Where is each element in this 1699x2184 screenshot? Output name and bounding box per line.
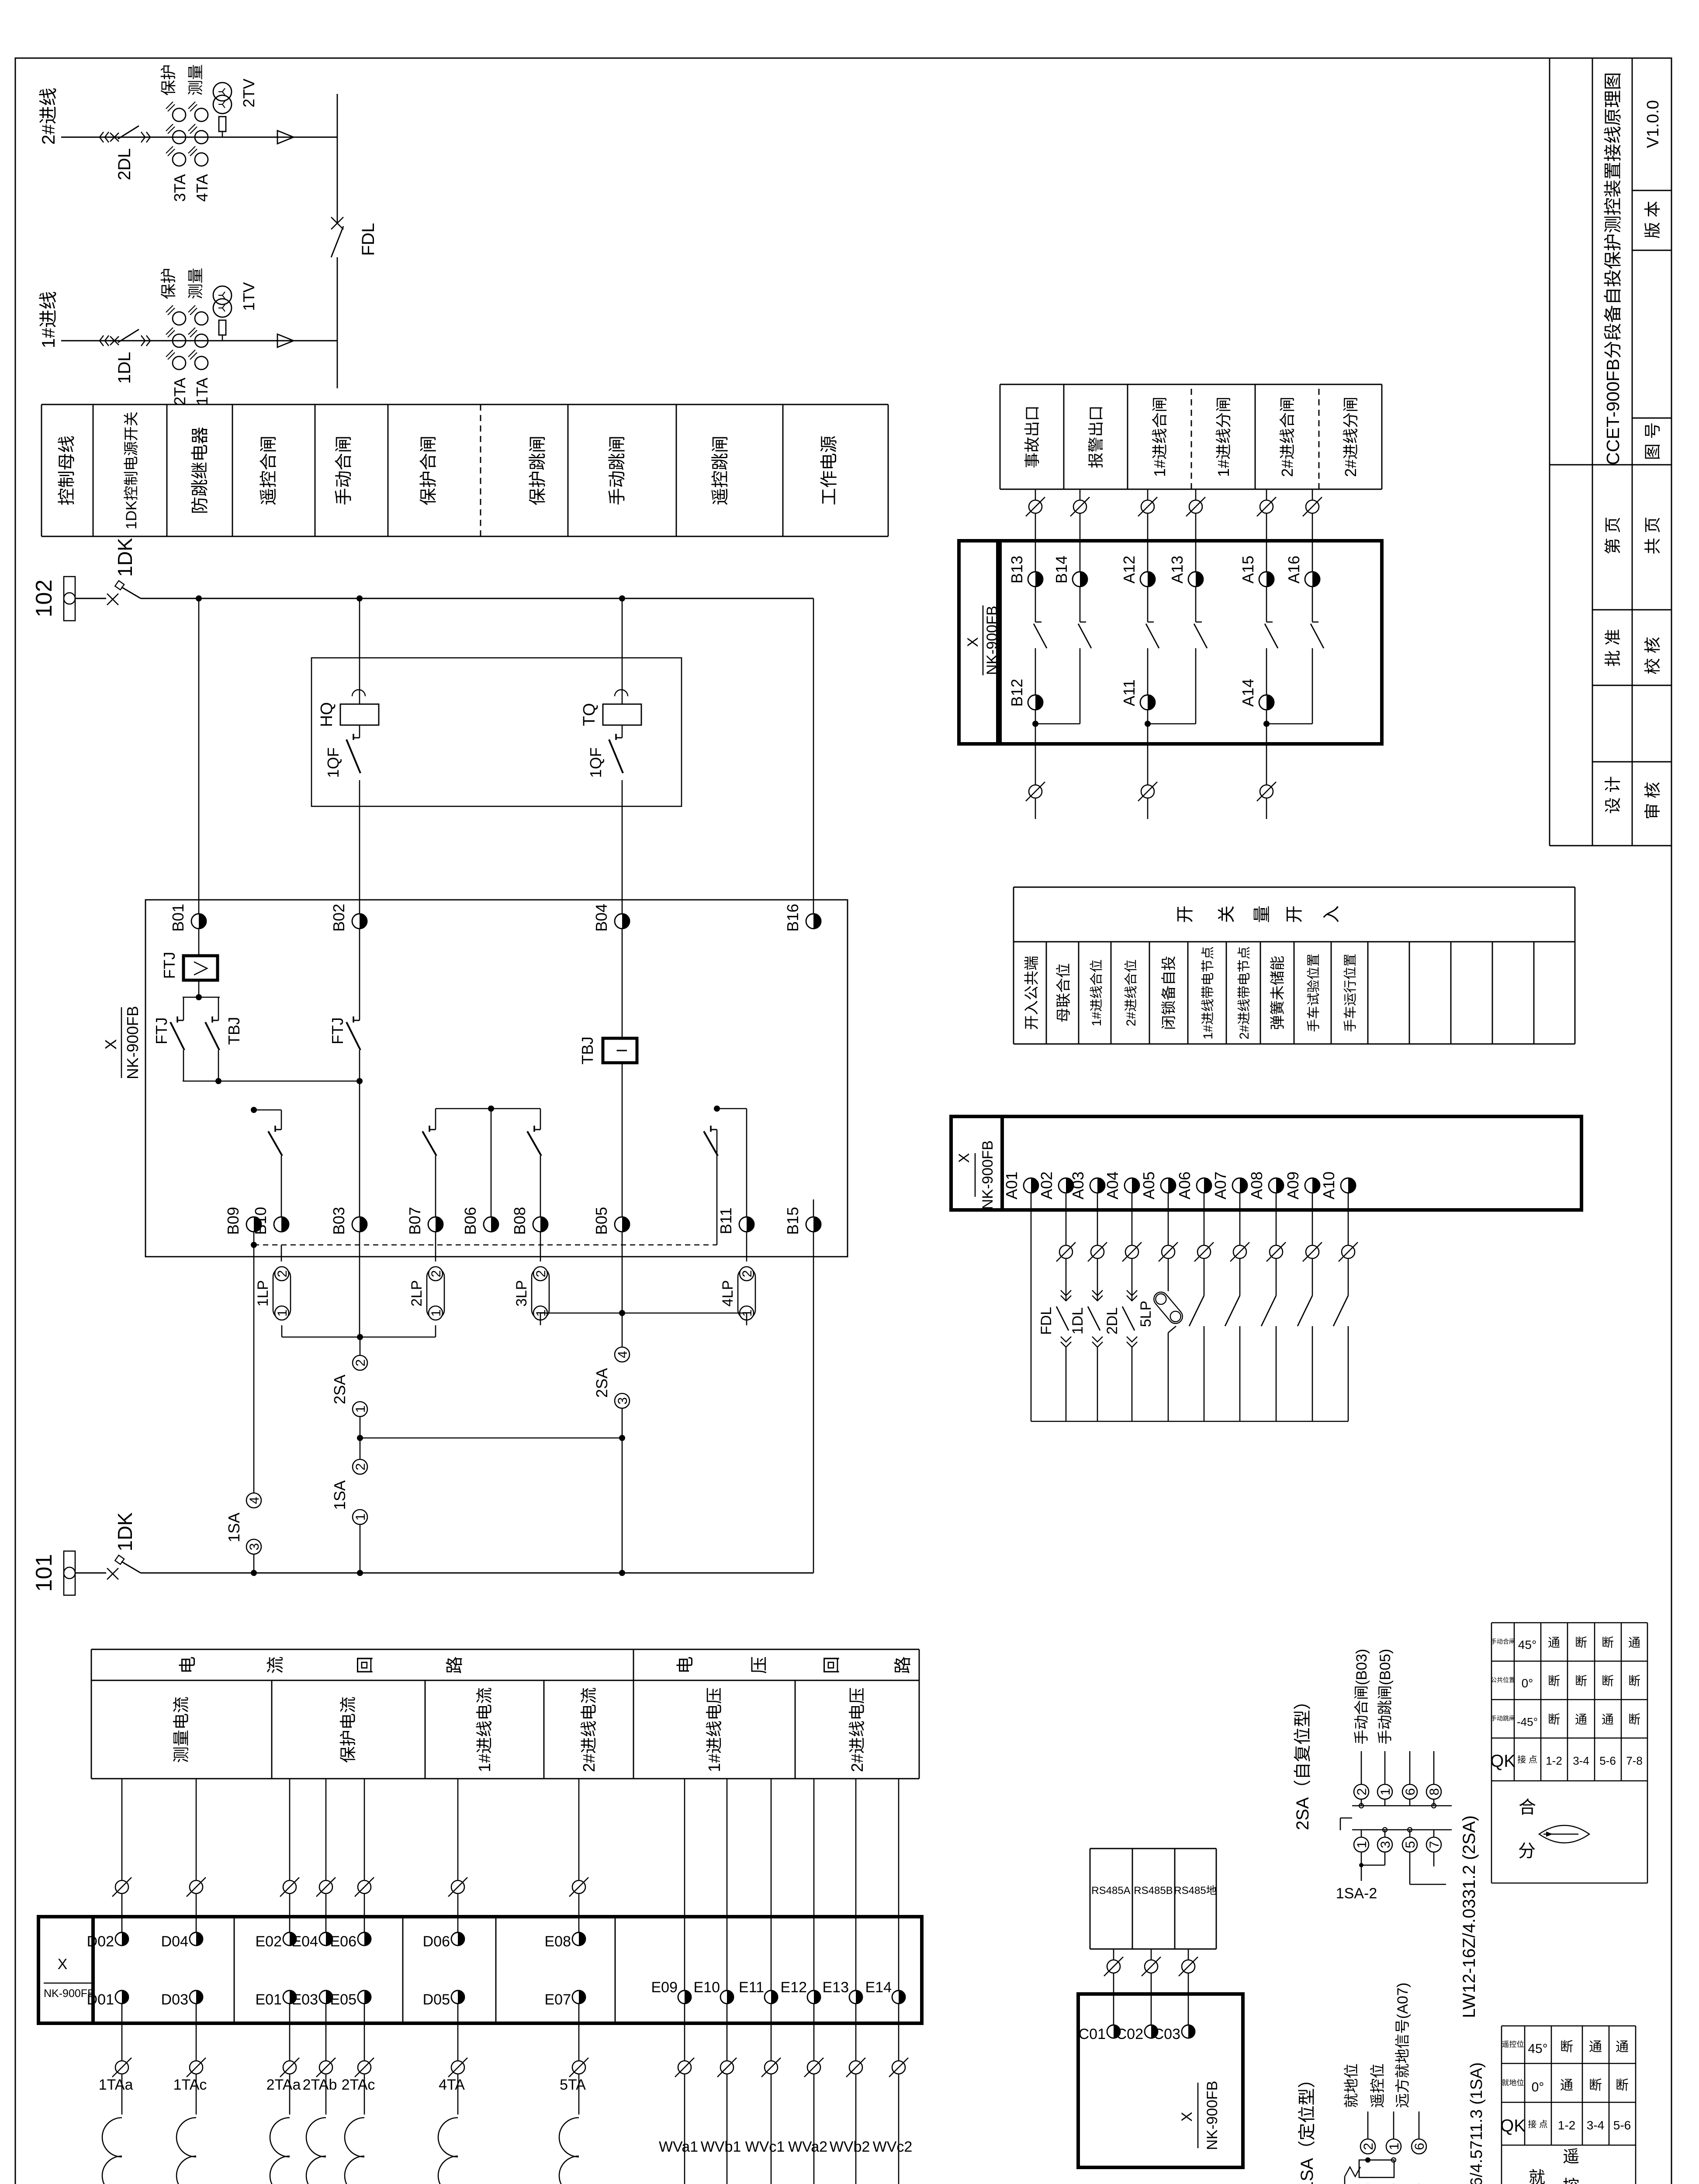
svg-text:E13: E13	[823, 1979, 849, 1996]
svg-text:2: 2	[1361, 2143, 1376, 2150]
svg-text:45°: 45°	[1528, 2042, 1547, 2056]
svg-text:手动跳闸: 手动跳闸	[608, 435, 627, 505]
svg-text:2SA: 2SA	[593, 1368, 611, 1398]
svg-text:通: 通	[1628, 1636, 1640, 1649]
svg-text:2: 2	[429, 1270, 443, 1278]
svg-text:X: X	[1179, 2112, 1195, 2122]
svg-text:A07: A07	[1211, 1171, 1229, 1199]
svg-text:X: X	[965, 637, 981, 647]
svg-text:第 页: 第 页	[1604, 517, 1623, 555]
svg-text:1SA（定位型）: 1SA（定位型）	[1298, 2070, 1317, 2184]
svg-text:A16: A16	[1285, 556, 1303, 584]
svg-text:2DL: 2DL	[1104, 1307, 1121, 1334]
svg-text:0°: 0°	[1522, 1676, 1533, 1690]
svg-text:1-2: 1-2	[1546, 1754, 1562, 1767]
svg-text:NK-900FB: NK-900FB	[124, 1006, 142, 1079]
svg-text:断: 断	[1628, 1674, 1640, 1688]
svg-text:控制母线: 控制母线	[57, 435, 76, 505]
svg-text:遥控跳闸: 遥控跳闸	[711, 435, 730, 505]
svg-text:1: 1	[353, 1406, 368, 1413]
svg-text:保护跳闸: 保护跳闸	[528, 435, 547, 505]
svg-text:就地位: 就地位	[1343, 2063, 1360, 2108]
svg-text:E08: E08	[545, 1933, 571, 1950]
svg-text:断: 断	[1602, 1674, 1614, 1688]
svg-text:FTJ: FTJ	[160, 952, 178, 979]
svg-text:遥控合闸: 遥控合闸	[259, 435, 278, 505]
svg-text:测量电流: 测量电流	[173, 1697, 191, 1763]
svg-text:2: 2	[534, 1270, 548, 1278]
svg-text:1#进线合位: 1#进线合位	[1090, 959, 1104, 1026]
svg-text:B15: B15	[784, 1207, 802, 1235]
svg-text:断: 断	[1575, 1636, 1587, 1649]
svg-text:1DL: 1DL	[115, 352, 134, 384]
svg-text:1: 1	[1378, 1788, 1393, 1796]
svg-text:通: 通	[1616, 2040, 1629, 2054]
svg-text:图 号: 图 号	[1644, 422, 1662, 460]
svg-text:电: 电	[178, 1656, 197, 1674]
svg-text:报警出口: 报警出口	[1087, 405, 1105, 468]
svg-text:1: 1	[1355, 1841, 1369, 1849]
svg-text:1#进线: 1#进线	[38, 291, 59, 349]
svg-text:B07: B07	[406, 1207, 424, 1235]
svg-text:B12: B12	[1008, 679, 1026, 707]
svg-text:2TV: 2TV	[240, 79, 258, 107]
svg-text:45°: 45°	[1518, 1638, 1536, 1652]
svg-text:手车运行位置: 手车运行位置	[1343, 954, 1358, 1032]
svg-text:1: 1	[275, 1310, 290, 1317]
svg-text:D02: D02	[87, 1933, 114, 1950]
svg-text:1: 1	[429, 1310, 443, 1317]
svg-text:控: 控	[1563, 2177, 1579, 2184]
svg-text:流: 流	[266, 1656, 285, 1674]
svg-text:B08: B08	[511, 1207, 529, 1235]
svg-text:关: 关	[1217, 905, 1236, 923]
svg-text:接 点: 接 点	[1528, 2119, 1548, 2129]
svg-text:7-8: 7-8	[1626, 1754, 1643, 1767]
svg-text:A14: A14	[1239, 679, 1257, 707]
svg-text:接 点: 接 点	[1517, 1755, 1537, 1765]
svg-text:1#进线电流: 1#进线电流	[476, 1687, 494, 1772]
svg-text:3: 3	[616, 1397, 630, 1405]
svg-text:远方就地信号(A07): 远方就地信号(A07)	[1394, 1983, 1411, 2108]
svg-text:2: 2	[353, 1359, 368, 1367]
svg-text:3-4: 3-4	[1573, 1754, 1589, 1767]
svg-text:B14: B14	[1052, 556, 1070, 584]
svg-text:NK-900FB: NK-900FB	[984, 606, 1000, 675]
svg-text:B06: B06	[461, 1207, 479, 1235]
svg-text:6: 6	[1403, 1788, 1418, 1796]
svg-text:A13: A13	[1168, 556, 1186, 584]
svg-text:A08: A08	[1248, 1171, 1266, 1199]
svg-text:通: 通	[1560, 2078, 1573, 2093]
svg-text:保护电流: 保护电流	[339, 1697, 358, 1763]
svg-text:回: 回	[822, 1656, 841, 1674]
svg-text:E11: E11	[739, 1979, 764, 1996]
svg-text:TBJ: TBJ	[578, 1037, 596, 1064]
svg-text:2#进线带电节点: 2#进线带电节点	[1237, 946, 1252, 1039]
svg-text:2TA: 2TA	[171, 378, 189, 405]
svg-text:TBJ: TBJ	[225, 1017, 243, 1045]
svg-text:B05: B05	[592, 1207, 610, 1235]
svg-text:FDL: FDL	[359, 223, 378, 256]
svg-text:D05: D05	[423, 1991, 450, 2008]
svg-text:1DK控制电源开关: 1DK控制电源开关	[123, 411, 140, 529]
svg-text:母联合位: 母联合位	[1055, 963, 1072, 1023]
svg-text:6: 6	[1412, 2143, 1427, 2150]
svg-text:X: X	[956, 1153, 972, 1163]
svg-text:-45°: -45°	[1517, 1715, 1538, 1728]
svg-text:E05: E05	[330, 1991, 357, 2008]
svg-text:合: 合	[1519, 1798, 1536, 1817]
svg-text:FTJ: FTJ	[152, 1017, 170, 1044]
svg-text:2#进线分闸: 2#进线分闸	[1342, 397, 1360, 477]
svg-text:公共位置: 公共位置	[1491, 1676, 1515, 1683]
svg-text:V1.0.0: V1.0.0	[1644, 100, 1662, 148]
svg-text:1#进线合闸: 1#进线合闸	[1151, 397, 1169, 477]
svg-text:5-6: 5-6	[1599, 1754, 1616, 1767]
svg-text:A11: A11	[1120, 679, 1138, 706]
svg-text:A05: A05	[1140, 1171, 1158, 1199]
svg-text:A03: A03	[1069, 1171, 1087, 1199]
svg-text:通: 通	[1589, 2040, 1602, 2054]
svg-text:事故出口: 事故出口	[1023, 405, 1041, 468]
svg-text:B10: B10	[252, 1207, 270, 1235]
svg-text:保护: 保护	[159, 64, 177, 96]
svg-text:保护: 保护	[159, 268, 177, 299]
svg-text:A09: A09	[1284, 1171, 1302, 1199]
svg-text:7: 7	[1427, 1841, 1442, 1849]
svg-text:通: 通	[1575, 1713, 1587, 1726]
svg-text:E04: E04	[292, 1933, 318, 1950]
svg-text:1TA: 1TA	[193, 378, 211, 405]
svg-text:5-6: 5-6	[1613, 2118, 1631, 2132]
svg-text:通: 通	[1602, 1713, 1614, 1726]
svg-text:就地位: 就地位	[1502, 2079, 1524, 2087]
svg-text:LW12-16Z/4.0331.2 (2SA): LW12-16Z/4.0331.2 (2SA)	[1460, 1815, 1479, 2018]
svg-text:断: 断	[1589, 2078, 1602, 2093]
svg-text:测量: 测量	[187, 64, 204, 96]
svg-text:8: 8	[1427, 1788, 1442, 1796]
svg-text:工作电源: 工作电源	[820, 435, 839, 505]
svg-text:TQ: TQ	[580, 703, 599, 726]
svg-text:1TAa: 1TAa	[99, 2077, 133, 2093]
svg-text:2LP: 2LP	[408, 1280, 425, 1307]
svg-text:E03: E03	[292, 1991, 318, 2008]
svg-text:量: 量	[1253, 905, 1272, 923]
svg-text:4TA: 4TA	[193, 174, 211, 202]
svg-text:102: 102	[31, 580, 57, 618]
svg-text:压: 压	[750, 1656, 769, 1674]
svg-text:断: 断	[1548, 1713, 1560, 1726]
svg-text:101: 101	[31, 1554, 57, 1592]
svg-text:2: 2	[740, 1270, 754, 1278]
svg-text:A02: A02	[1038, 1171, 1055, 1199]
svg-text:断: 断	[1602, 1636, 1614, 1649]
svg-text:FDL: FDL	[1038, 1307, 1055, 1335]
svg-text:手动跳闸(B05): 手动跳闸(B05)	[1377, 1649, 1394, 1745]
svg-text:批 准: 批 准	[1604, 629, 1623, 667]
svg-text:断: 断	[1548, 1674, 1560, 1688]
svg-text:校 核: 校 核	[1644, 637, 1662, 675]
svg-text:2#进线电流: 2#进线电流	[580, 1687, 599, 1772]
svg-text:4TA: 4TA	[439, 2077, 465, 2093]
svg-text:4LP: 4LP	[720, 1280, 736, 1307]
svg-text:HQ: HQ	[318, 702, 336, 727]
svg-text:2SA: 2SA	[331, 1375, 349, 1404]
svg-text:D01: D01	[87, 1991, 114, 2008]
svg-text:A12: A12	[1120, 556, 1138, 584]
svg-text:2TAc: 2TAc	[342, 2077, 375, 2093]
svg-text:1SA: 1SA	[331, 1480, 349, 1510]
svg-text:QK: QK	[1500, 2116, 1526, 2136]
svg-text:3: 3	[247, 1543, 262, 1551]
svg-text:版 本: 版 本	[1644, 201, 1662, 239]
svg-text:5LP: 5LP	[1138, 1301, 1154, 1327]
svg-text:D04: D04	[161, 1933, 188, 1950]
svg-text:1: 1	[353, 1514, 368, 1521]
svg-text:0°: 0°	[1532, 2080, 1544, 2094]
svg-text:2#进线电压: 2#进线电压	[848, 1687, 867, 1772]
svg-text:A15: A15	[1239, 556, 1257, 584]
svg-text:手动合闸(B03): 手动合闸(B03)	[1353, 1649, 1370, 1745]
svg-text:开: 开	[1285, 905, 1304, 923]
svg-text:4: 4	[247, 1497, 262, 1504]
svg-text:1-2: 1-2	[1558, 2118, 1575, 2132]
svg-text:1TV: 1TV	[240, 282, 258, 311]
svg-text:WVc1: WVc1	[745, 2139, 785, 2155]
svg-text:1QF: 1QF	[324, 747, 342, 778]
svg-text:断: 断	[1628, 1713, 1640, 1726]
svg-text:1DK: 1DK	[114, 538, 136, 577]
svg-text:B09: B09	[224, 1207, 242, 1235]
svg-text:手车试验位置: 手车试验位置	[1307, 954, 1321, 1032]
svg-text:E12: E12	[781, 1979, 807, 1996]
svg-text:QK: QK	[1490, 1752, 1516, 1771]
svg-text:2: 2	[1355, 1788, 1369, 1796]
svg-text:弹簧未储能: 弹簧未储能	[1270, 956, 1286, 1030]
svg-text:CCET-900FB分段备自投保护测控装置接线原理图: CCET-900FB分段备自投保护测控装置接线原理图	[1603, 72, 1623, 465]
svg-text:审 核: 审 核	[1644, 782, 1662, 820]
svg-text:2#进线合位: 2#进线合位	[1124, 959, 1138, 1026]
svg-text:1: 1	[1387, 2143, 1401, 2150]
svg-text:2#进线: 2#进线	[38, 88, 59, 145]
svg-text:路: 路	[893, 1656, 913, 1674]
svg-text:WVa2: WVa2	[788, 2139, 827, 2155]
svg-text:D06: D06	[423, 1933, 450, 1950]
svg-text:RS485B: RS485B	[1134, 1885, 1173, 1897]
svg-text:FTJ: FTJ	[329, 1017, 346, 1044]
svg-text:I: I	[614, 1048, 630, 1052]
svg-text:X: X	[58, 1956, 68, 1973]
svg-text:2DL: 2DL	[115, 148, 134, 180]
svg-text:D03: D03	[161, 1991, 188, 2008]
svg-text:B04: B04	[592, 904, 610, 932]
svg-text:1TAc: 1TAc	[173, 2077, 207, 2093]
svg-text:E10: E10	[694, 1979, 720, 1996]
svg-text:4: 4	[616, 1351, 630, 1358]
svg-text:3-4: 3-4	[1587, 2118, 1604, 2132]
svg-text:2TAa: 2TAa	[266, 2077, 301, 2093]
svg-text:断: 断	[1575, 1674, 1587, 1688]
svg-text:遥: 遥	[1563, 2148, 1579, 2166]
svg-text:E07: E07	[545, 1991, 571, 2008]
svg-text:5: 5	[1403, 1841, 1418, 1849]
svg-text:C01: C01	[1079, 2026, 1106, 2042]
svg-text:1QF: 1QF	[587, 747, 605, 778]
svg-text:5TA: 5TA	[560, 2077, 586, 2093]
svg-text:3LP: 3LP	[513, 1280, 530, 1307]
svg-text:共 页: 共 页	[1644, 517, 1662, 555]
svg-text:A06: A06	[1176, 1171, 1194, 1199]
svg-text:WVb2: WVb2	[830, 2139, 870, 2155]
svg-text:1DL: 1DL	[1069, 1307, 1086, 1334]
svg-text:测量: 测量	[187, 268, 204, 299]
svg-text:2: 2	[353, 1463, 368, 1471]
svg-text:1SA: 1SA	[225, 1513, 243, 1542]
svg-text:A10: A10	[1320, 1171, 1338, 1199]
svg-text:RS485A: RS485A	[1091, 1885, 1130, 1897]
svg-text:RS485地: RS485地	[1174, 1885, 1216, 1897]
svg-text:B01: B01	[169, 904, 187, 932]
svg-text:B11: B11	[717, 1207, 735, 1234]
svg-text:C03: C03	[1153, 2026, 1180, 2042]
svg-text:分: 分	[1518, 1842, 1536, 1861]
svg-text:电: 电	[676, 1656, 695, 1674]
svg-text:WVa1: WVa1	[659, 2139, 698, 2155]
svg-text:E01: E01	[256, 1991, 282, 2008]
svg-text:就: 就	[1529, 2169, 1545, 2184]
svg-text:1SA-2: 1SA-2	[1336, 1885, 1377, 1902]
svg-text:回: 回	[356, 1656, 375, 1674]
svg-text:WVc2: WVc2	[873, 2139, 913, 2155]
svg-text:NK-900FB: NK-900FB	[1204, 2081, 1221, 2150]
svg-text:1LP: 1LP	[255, 1280, 271, 1307]
svg-text:防跳继电器: 防跳继电器	[190, 427, 210, 514]
svg-text:WVb1: WVb1	[701, 2139, 741, 2155]
svg-text:入: 入	[1322, 905, 1341, 923]
svg-text:2: 2	[275, 1270, 290, 1278]
svg-text:手动跳闸: 手动跳闸	[1491, 1715, 1515, 1722]
svg-text:3: 3	[1378, 1841, 1393, 1849]
svg-text:B16: B16	[784, 904, 802, 932]
svg-text:遥控位: 遥控位	[1502, 2040, 1524, 2049]
svg-text:E06: E06	[330, 1933, 357, 1950]
svg-text:断: 断	[1616, 2078, 1629, 2093]
svg-text:E09: E09	[651, 1979, 678, 1996]
svg-text:开入公共端: 开入公共端	[1024, 956, 1040, 1030]
svg-text:保护合闸: 保护合闸	[419, 435, 438, 505]
svg-text:B02: B02	[330, 904, 348, 932]
svg-text:B13: B13	[1008, 556, 1026, 584]
svg-text:C02: C02	[1116, 2026, 1143, 2042]
svg-text:2TAb: 2TAb	[303, 2077, 337, 2093]
svg-text:3TA: 3TA	[171, 174, 189, 202]
svg-text:通: 通	[1548, 1636, 1560, 1649]
svg-text:遥控位: 遥控位	[1370, 2063, 1386, 2108]
svg-text:1#进线电压: 1#进线电压	[706, 1687, 724, 1772]
svg-text:E14: E14	[865, 1979, 892, 1996]
svg-text:1DK: 1DK	[114, 1512, 136, 1552]
svg-text:手动合闸: 手动合闸	[1491, 1638, 1515, 1645]
svg-text:闭锁备自投: 闭锁备自投	[1161, 956, 1177, 1030]
svg-text:A01: A01	[1003, 1171, 1021, 1199]
svg-text:LW12-16/4.5711.3 (1SA): LW12-16/4.5711.3 (1SA)	[1467, 2062, 1486, 2184]
svg-text:1#进线分闸: 1#进线分闸	[1215, 397, 1232, 477]
svg-text:E02: E02	[256, 1933, 282, 1950]
svg-text:设 计: 设 计	[1604, 776, 1623, 814]
svg-text:A04: A04	[1104, 1171, 1121, 1199]
svg-text:路: 路	[445, 1656, 464, 1674]
svg-text:2SA（自复位型）: 2SA（自复位型）	[1293, 1692, 1312, 1830]
svg-text:手动合闸: 手动合闸	[334, 435, 353, 505]
svg-text:X: X	[102, 1039, 120, 1050]
svg-text:NK-900FB: NK-900FB	[979, 1140, 996, 1210]
svg-text:断: 断	[1560, 2040, 1573, 2054]
svg-text:B03: B03	[330, 1207, 348, 1235]
svg-text:2#进线合闸: 2#进线合闸	[1278, 397, 1296, 477]
svg-text:开: 开	[1176, 905, 1195, 923]
svg-text:1#进线带电节点: 1#进线带电节点	[1201, 946, 1215, 1039]
